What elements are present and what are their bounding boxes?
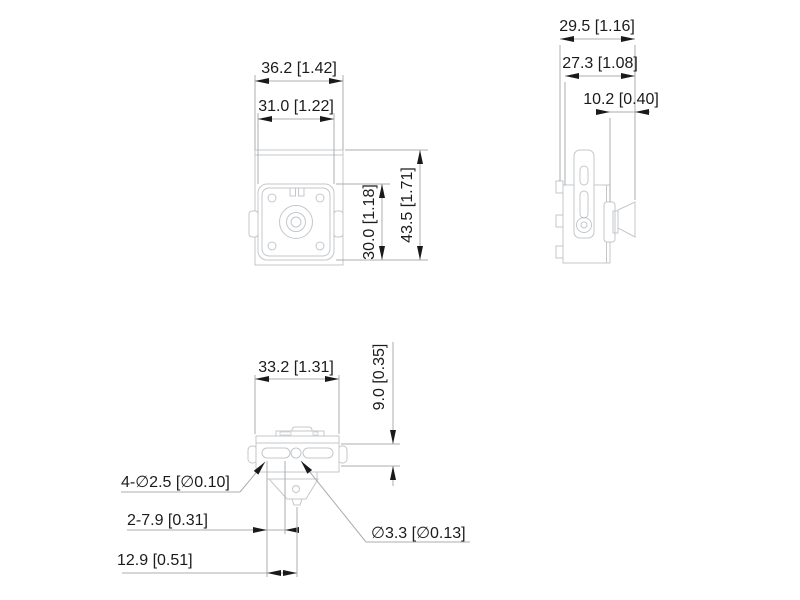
front-right-boss [334,211,343,237]
front-view-outline [249,150,343,265]
dim-label-bottom-slot-length: 2-7.9 [0.31] [127,512,208,529]
bottom-body [256,436,339,472]
bottom-mount-wedge [269,479,318,499]
side-lens-cone [618,202,635,237]
dimension-drawing: 36.2 [1.42] 31.0 [1.22] 30.0 [1.18] 43.5… [0,0,800,600]
bottom-mount-step [267,472,317,479]
dim-label-bottom-body-depth: 9.0 [0.35] [371,344,388,411]
dim-label-bottom-body-width: 33.2 [1.31] [258,359,334,376]
front-view: 36.2 [1.42] 31.0 [1.22] 30.0 [1.18] 43.5… [249,60,428,265]
front-dim-plate-width: 31.0 [1.22] [258,98,334,184]
front-dim-overall-height: 43.5 [1.71] [345,150,428,260]
dim-label-front-plate-height: 30.0 [1.18] [361,184,378,260]
side-tab-middle [556,215,563,227]
bottom-mount-tail [292,499,302,505]
bottom-view-outline [248,427,347,505]
dim-label-front-plate-width: 31.0 [1.22] [258,98,334,115]
dim-label-bottom-center-hole: ∅3.3 [∅0.13] [371,525,466,542]
dim-label-side-overall-depth: 29.5 [1.16] [559,18,635,35]
side-view: 29.5 [1.16] 27.3 [1.08] 10.2 [0.40] [556,18,659,263]
dim-label-side-lens-length: 10.2 [0.40] [583,91,659,108]
bottom-leader-center-hole: ∅3.3 [∅0.13] [301,461,470,542]
side-tab-lower [556,246,563,258]
dim-label-front-overall-height: 43.5 [1.71] [399,167,416,243]
front-left-boss [249,211,258,237]
dim-label-bottom-hole-offset: 12.9 [0.51] [117,552,193,569]
dim-label-side-body-depth: 27.3 [1.08] [562,55,638,72]
bottom-leader-slot-holes: 4-∅2.5 [∅0.10] [121,462,265,492]
side-dim-overall-depth: 29.5 [1.16] [559,18,635,200]
drawing-canvas: 36.2 [1.42] 31.0 [1.22] 30.0 [1.18] 43.5… [0,0,800,600]
dim-label-bottom-slot-holes: 4-∅2.5 [∅0.10] [121,474,230,491]
bottom-view: 33.2 [1.31] 9.0 [0.35] 4-∅2.5 [∅0.10] 2-… [117,342,470,577]
dim-label-front-outer-width: 36.2 [1.42] [261,60,337,77]
bottom-dim-body-width: 33.2 [1.31] [255,359,339,434]
side-tab-upper [556,181,563,193]
side-view-outline [556,150,635,263]
bottom-dim-body-depth: 9.0 [0.35] [341,342,400,486]
